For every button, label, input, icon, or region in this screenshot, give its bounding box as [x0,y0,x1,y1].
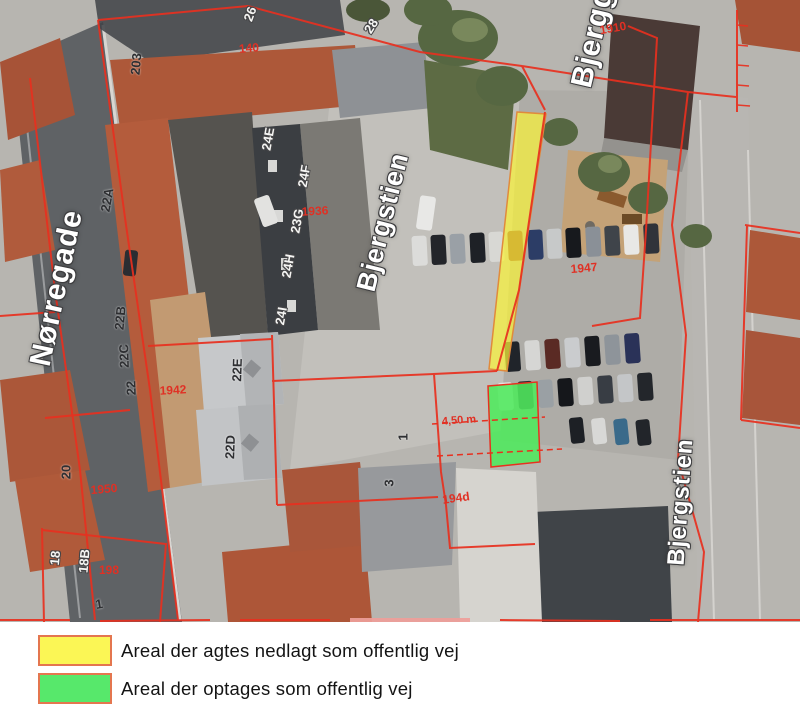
legend-label-green: Areal der optages som offentlig vej [121,678,413,700]
cadastral-map-figure: Nørregade Bjergstien Bjergg Bjergstien 2… [0,0,800,722]
legend-row-green: Areal der optages som offentlig vej [38,673,800,704]
legend-row-yellow: Areal der agtes nedlagt som offentlig ve… [38,635,800,666]
aerial-map: Nørregade Bjergstien Bjergg Bjergstien 2… [0,0,800,622]
legend-swatch-yellow [38,635,112,666]
legend: Areal der agtes nedlagt som offentlig ve… [0,622,800,722]
aerial-photo-backdrop [0,0,800,622]
legend-label-yellow: Areal der agtes nedlagt som offentlig ve… [121,640,459,662]
legend-swatch-green [38,673,112,704]
hip-roof-buildings [196,332,284,486]
highlight-area-green [488,382,540,467]
